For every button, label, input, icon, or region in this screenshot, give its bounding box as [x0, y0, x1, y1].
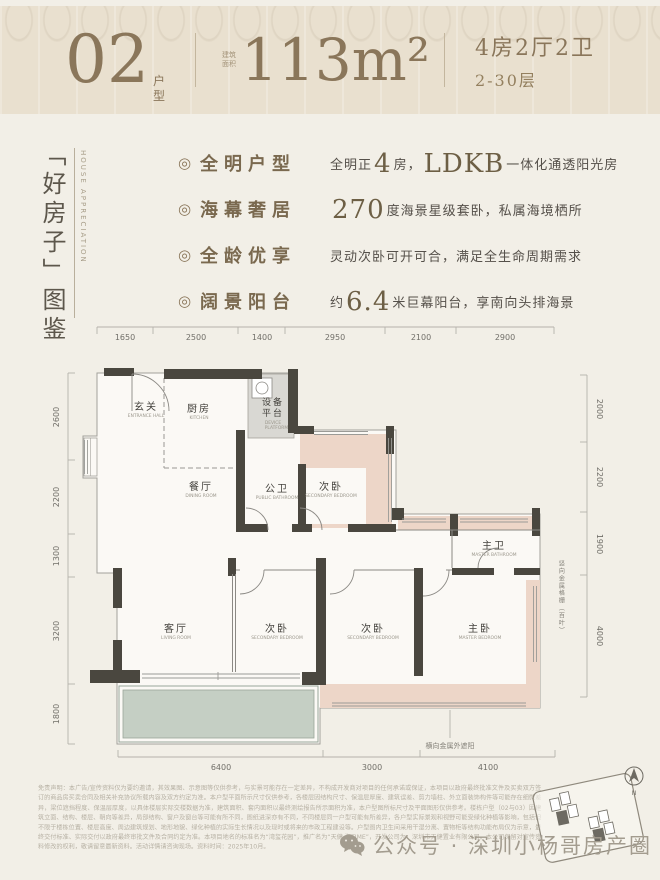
svg-text:横向金属外遮阳: 横向金属外遮阳 — [426, 741, 475, 750]
room-living: 客厅LIVING ROOM — [149, 620, 203, 644]
svg-text:2950: 2950 — [325, 333, 345, 342]
feature-label: 全明户型 — [200, 150, 330, 176]
svg-text:2000: 2000 — [595, 399, 604, 419]
side-title: 「好房子」图鉴 HOUSE APPRECIATION — [40, 142, 87, 345]
svg-text:1900: 1900 — [595, 534, 604, 554]
unit-number: 02 — [65, 27, 149, 93]
watermark-text: 公众号 · 深圳小杨哥房产圈 — [373, 830, 652, 860]
feature-description: 灵动次卧可开可合，满足全生命周期需求 — [330, 246, 582, 265]
svg-text:4100: 4100 — [478, 763, 498, 772]
feature-row: ◎ 阔景阳台 约6.4米巨幕阳台，享南向头排海景 — [178, 284, 648, 318]
floor-plan: 1650 2500 1400 2950 2100 2900 2600 2200 … — [0, 318, 660, 780]
watermark: 公众号 · 深圳小杨哥房产圈 — [0, 830, 652, 860]
svg-text:6400: 6400 — [211, 763, 231, 772]
room-dining: 餐厅DINING ROOM — [173, 478, 230, 502]
floors-range: 2-30层 — [475, 67, 595, 91]
svg-text:1400: 1400 — [252, 333, 272, 342]
room-device-platform: 设备平台DEVICE PLATFORM — [258, 398, 288, 438]
feature-label: 全龄优享 — [200, 242, 330, 268]
feature-description: 约6.4米巨幕阳台，享南向头排海景 — [330, 288, 574, 314]
svg-text:N: N — [632, 790, 637, 797]
svg-text:3200: 3200 — [52, 621, 61, 641]
svg-text:1800: 1800 — [52, 704, 61, 724]
bullseye-icon: ◎ — [178, 154, 200, 172]
balcony — [119, 686, 318, 742]
bullseye-icon: ◎ — [178, 200, 200, 218]
feature-description: 270度海景星级套卧，私属海境栖所 — [330, 196, 583, 222]
room-master-bedroom: 主卧MASTER BEDROOM — [441, 620, 518, 644]
unit-label: 户型 — [153, 74, 167, 104]
room-kitchen: 厨房KITCHEN — [182, 400, 217, 424]
side-title-main: 「好房子」图鉴 — [40, 142, 64, 345]
unit-rooms: 4房2厅2卫 2-30层 — [475, 30, 595, 91]
poster-page: 02 户型 建筑面积 113m² 4房2厅2卫 2-30层 「好房子」图鉴 HO… — [0, 0, 660, 880]
svg-text:2500: 2500 — [186, 333, 206, 342]
feature-row: ◎ 海幕奢居 270度海景星级套卧，私属海境栖所 — [178, 192, 648, 226]
sunshade-annotation: 横向金属外遮阳 — [426, 710, 475, 750]
header-divider — [444, 33, 445, 87]
bullseye-icon: ◎ — [178, 246, 200, 264]
feature-row: ◎ 全明户型 全明正4房，LDKB一体化通透阳光房 — [178, 146, 648, 180]
svg-text:1650: 1650 — [115, 333, 135, 342]
room-secondary-bedroom-2: 次卧SECONDARY BEDROOM — [230, 620, 324, 644]
feature-label: 海幕奢居 — [200, 196, 330, 222]
room-master-bathroom: 主卫MASTER BATHROOM — [453, 537, 535, 561]
feature-label: 阔景阳台 — [200, 288, 330, 314]
header-band: 02 户型 建筑面积 113m² 4房2厅2卫 2-30层 — [0, 6, 660, 114]
feature-list: ◎ 全明户型 全明正4房，LDKB一体化通透阳光房 ◎ 海幕奢居 270度海景星… — [178, 146, 648, 330]
room-secondary-bedroom-3: 次卧SECONDARY BEDROOM — [326, 620, 420, 644]
side-title-english: HOUSE APPRECIATION — [79, 150, 87, 345]
room-secondary-bedroom-1: 次卧SECONDARY BEDROOM — [284, 478, 378, 502]
room-entrance: 玄关ENTRANCE HALL — [113, 398, 179, 422]
floor-plan-drawing: 1650 2500 1400 2950 2100 2900 2600 2200 … — [0, 318, 660, 780]
svg-text:1300: 1300 — [52, 546, 61, 566]
side-title-divider — [74, 148, 75, 318]
feature-row: ◎ 全龄优享 灵动次卧可开可合，满足全生命周期需求 — [178, 238, 648, 272]
svg-text:2100: 2100 — [411, 333, 431, 342]
unit-area: 113m² — [241, 31, 430, 89]
svg-text:2900: 2900 — [495, 333, 515, 342]
svg-text:2200: 2200 — [52, 487, 61, 507]
svg-text:3000: 3000 — [362, 763, 382, 772]
metal-grille-annotation: 竖向金属格栅（百叶） — [556, 560, 565, 634]
area-prefix: 建筑面积 — [222, 51, 237, 69]
bullseye-icon: ◎ — [178, 292, 200, 310]
rooms-count: 4房2厅2卫 — [475, 30, 595, 62]
wechat-icon — [339, 833, 365, 857]
svg-text:2600: 2600 — [52, 407, 61, 427]
header-divider — [195, 33, 196, 87]
svg-text:2200: 2200 — [595, 467, 604, 487]
feature-description: 全明正4房，LDKB一体化通透阳光房 — [330, 150, 618, 176]
svg-text:4000: 4000 — [595, 626, 604, 646]
